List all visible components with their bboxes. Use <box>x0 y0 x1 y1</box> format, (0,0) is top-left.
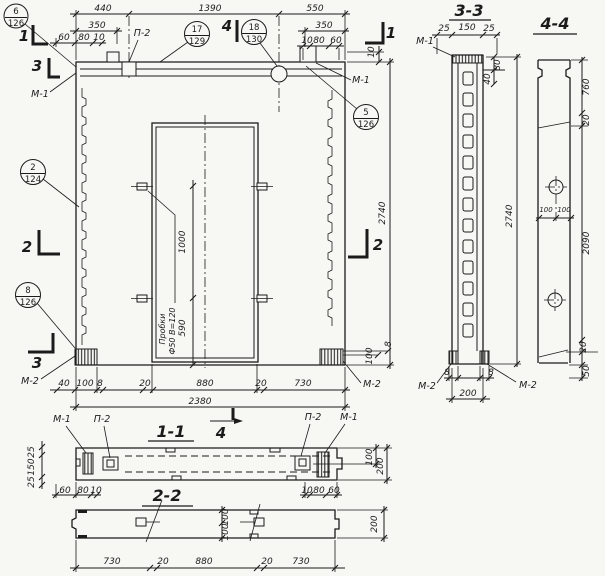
svg-text:100: 100 <box>539 206 553 214</box>
cut-mark-4-bottom: 4 <box>210 408 243 442</box>
dim-80: 80 <box>313 36 325 46</box>
section-2-2-view: 2-2 730 20 880 20 730 100 100 200 <box>70 486 388 572</box>
dim-730: 730 <box>294 379 311 389</box>
label-p2-top: П-2 <box>134 28 151 39</box>
label-m2-bottom-left: М-2 <box>21 376 39 387</box>
dim-350-left: 350 <box>88 21 105 31</box>
right-keyed-joint <box>328 90 332 326</box>
label-m1: М-1 <box>416 36 434 47</box>
taper-lines <box>538 122 570 357</box>
main-elevation-view: Пробки Ф50 В=120 590 440 1390 550 350 35… <box>4 4 396 411</box>
svg-text:80: 80 <box>493 59 503 71</box>
label-m2: М-2 <box>519 380 537 391</box>
balloon-17-129: 17 129 <box>160 22 210 63</box>
holes <box>544 176 567 311</box>
bottom-dimensions: 40 100 8 20 880 20 730 2380 <box>50 364 350 411</box>
drawing-sheet: Пробки Ф50 В=120 590 440 1390 550 350 35… <box>0 0 605 576</box>
svg-text:200: 200 <box>459 389 476 399</box>
hollow-core-voids <box>463 72 473 337</box>
note-line2: Ф50 В=120 <box>168 307 177 354</box>
label-m1: М-1 <box>340 412 358 423</box>
m2-embed-bottom-right <box>320 349 343 365</box>
m1-embed-cap <box>452 55 483 63</box>
label-m1-top-right: М-1 <box>352 75 370 86</box>
balloon-8-126: 8 126 <box>16 283 76 349</box>
svg-text:10: 10 <box>367 46 377 58</box>
dim-1000-590: 1000 <box>178 180 196 368</box>
svg-text:124: 124 <box>25 175 41 185</box>
svg-text:20: 20 <box>579 341 589 353</box>
note-line1: Пробки <box>158 314 167 345</box>
dim-20: 20 <box>255 379 267 389</box>
svg-text:17: 17 <box>192 25 203 35</box>
dim-40: 40 <box>58 379 70 389</box>
dim-100: 100 <box>76 379 93 389</box>
m2-foot-right <box>480 351 489 364</box>
p2-plug-right <box>295 456 310 470</box>
svg-text:50: 50 <box>582 365 592 377</box>
svg-text:6: 6 <box>13 7 18 17</box>
svg-text:100: 100 <box>557 206 571 214</box>
svg-text:18: 18 <box>249 23 260 33</box>
label-p2: П-2 <box>305 412 322 423</box>
svg-text:100: 100 <box>365 347 375 364</box>
balloon-2-124: 2 124 <box>21 160 80 208</box>
svg-text:150: 150 <box>458 23 475 33</box>
svg-text:20: 20 <box>157 557 169 567</box>
dim-350-right: 350 <box>315 21 332 31</box>
svg-text:130: 130 <box>246 35 262 45</box>
cut-mark-2-right: 2 <box>373 236 383 254</box>
svg-text:150: 150 <box>27 458 37 475</box>
cut-mark-1-top-right: 1 <box>386 24 396 42</box>
svg-text:100: 100 <box>221 508 231 525</box>
p2-plug-left <box>103 457 118 470</box>
main-labels: М-1 П-2 М-1 М-2 М-2 <box>21 28 381 390</box>
svg-text:25: 25 <box>438 24 450 34</box>
dim-2380: 2380 <box>189 397 212 407</box>
svg-text:730: 730 <box>103 557 120 567</box>
svg-text:10: 10 <box>301 486 313 496</box>
svg-text:20: 20 <box>582 114 592 126</box>
top-flange-lines <box>80 69 342 76</box>
section-1-1-view: 1-1 4 25 150 25 60 80 10 10 80 60 100 20… <box>27 408 392 498</box>
svg-text:20: 20 <box>261 557 273 567</box>
svg-text:2740: 2740 <box>505 204 515 227</box>
dim-10: 10 <box>301 36 313 46</box>
lifting-plug-circle <box>271 66 287 82</box>
m1-embed-tab-left <box>107 52 119 62</box>
section-2-2-dims: 730 20 880 20 730 100 100 200 <box>70 506 388 572</box>
dim-550: 550 <box>306 4 323 14</box>
label-m2: М-2 <box>418 381 436 392</box>
cut-mark-4-top: 4 <box>221 17 232 35</box>
svg-text:100: 100 <box>365 448 375 465</box>
cut-mark-1-top-left: 1 <box>19 27 29 45</box>
left-keyed-joint <box>82 88 86 345</box>
section-4-4-dims: 100 100 760 20 2090 20 50 <box>536 57 598 381</box>
section-2-2-outline <box>72 510 339 538</box>
svg-text:129: 129 <box>189 37 205 47</box>
label-m2-bottom-right: М-2 <box>363 379 381 390</box>
svg-text:10: 10 <box>90 486 102 496</box>
svg-text:126: 126 <box>358 120 374 130</box>
svg-text:25: 25 <box>483 24 495 34</box>
dim-1390: 1390 <box>199 4 222 14</box>
section-1-1-labels: М-1 П-2 П-2 М-1 <box>53 412 358 458</box>
section-1-1-title: 1-1 <box>157 422 186 441</box>
svg-text:880: 880 <box>195 557 212 567</box>
svg-text:1000: 1000 <box>178 230 188 253</box>
dim-20: 20 <box>139 379 151 389</box>
section-4-4-view: 4-4 100 100 760 20 2090 20 50 <box>533 14 598 381</box>
m1-embed-right <box>317 452 329 477</box>
svg-text:5: 5 <box>363 108 368 118</box>
cut-mark-2-left: 2 <box>22 238 32 256</box>
svg-text:730: 730 <box>292 557 309 567</box>
svg-text:80: 80 <box>313 486 325 496</box>
svg-text:126: 126 <box>20 298 36 308</box>
section-3-3-view: 3-3 25 150 25 80 40 8 8 200 2740 М-1 М-2… <box>416 1 537 403</box>
balloon-18-130: 18 130 <box>242 20 278 67</box>
cut-mark-3-top-left: 3 <box>32 57 42 75</box>
panel-working-drawing: Пробки Ф50 В=120 590 440 1390 550 350 35… <box>0 0 605 576</box>
svg-text:60: 60 <box>59 486 71 496</box>
svg-text:100: 100 <box>221 523 231 540</box>
svg-text:8: 8 <box>488 368 494 378</box>
m2-embed-bottom-left <box>75 349 97 365</box>
svg-text:80: 80 <box>77 486 89 496</box>
svg-text:8: 8 <box>25 286 30 296</box>
svg-text:200: 200 <box>370 515 380 532</box>
svg-text:8: 8 <box>384 341 394 347</box>
cut-mark-3-bottom-left: 3 <box>32 354 42 372</box>
svg-text:2090: 2090 <box>582 231 592 254</box>
dim-60: 60 <box>330 36 342 46</box>
svg-text:4: 4 <box>215 424 226 442</box>
svg-text:40: 40 <box>483 73 493 85</box>
dim-440: 440 <box>94 4 111 14</box>
right-embed-dims: 8 100 <box>343 341 394 365</box>
section-3-3-title: 3-3 <box>455 1 484 20</box>
label-m1-top-left: М-1 <box>31 89 49 100</box>
label-m1: М-1 <box>53 414 71 425</box>
m1-embed-left <box>83 453 93 474</box>
svg-text:2740: 2740 <box>378 201 388 224</box>
svg-text:25: 25 <box>27 446 37 458</box>
svg-text:25: 25 <box>27 476 37 488</box>
section-4-4-title: 4-4 <box>540 14 570 33</box>
plug-left <box>136 518 146 526</box>
dim-10: 10 <box>93 33 105 43</box>
dim-8: 8 <box>97 379 103 389</box>
section-2-2-title: 2-2 <box>153 486 182 505</box>
dim-80: 80 <box>78 33 90 43</box>
dim-590: 590 <box>178 319 188 336</box>
svg-text:200: 200 <box>376 457 386 474</box>
svg-text:760: 760 <box>582 78 592 95</box>
svg-text:2: 2 <box>30 163 35 173</box>
panel-outline <box>76 62 345 365</box>
dim-880: 880 <box>196 379 213 389</box>
m2-foot-left <box>449 351 458 364</box>
dim-2740-right: 2740 <box>347 58 394 369</box>
dim-60: 60 <box>58 33 70 43</box>
label-p2: П-2 <box>94 414 111 425</box>
svg-text:60: 60 <box>328 486 340 496</box>
column-outline <box>450 55 488 364</box>
